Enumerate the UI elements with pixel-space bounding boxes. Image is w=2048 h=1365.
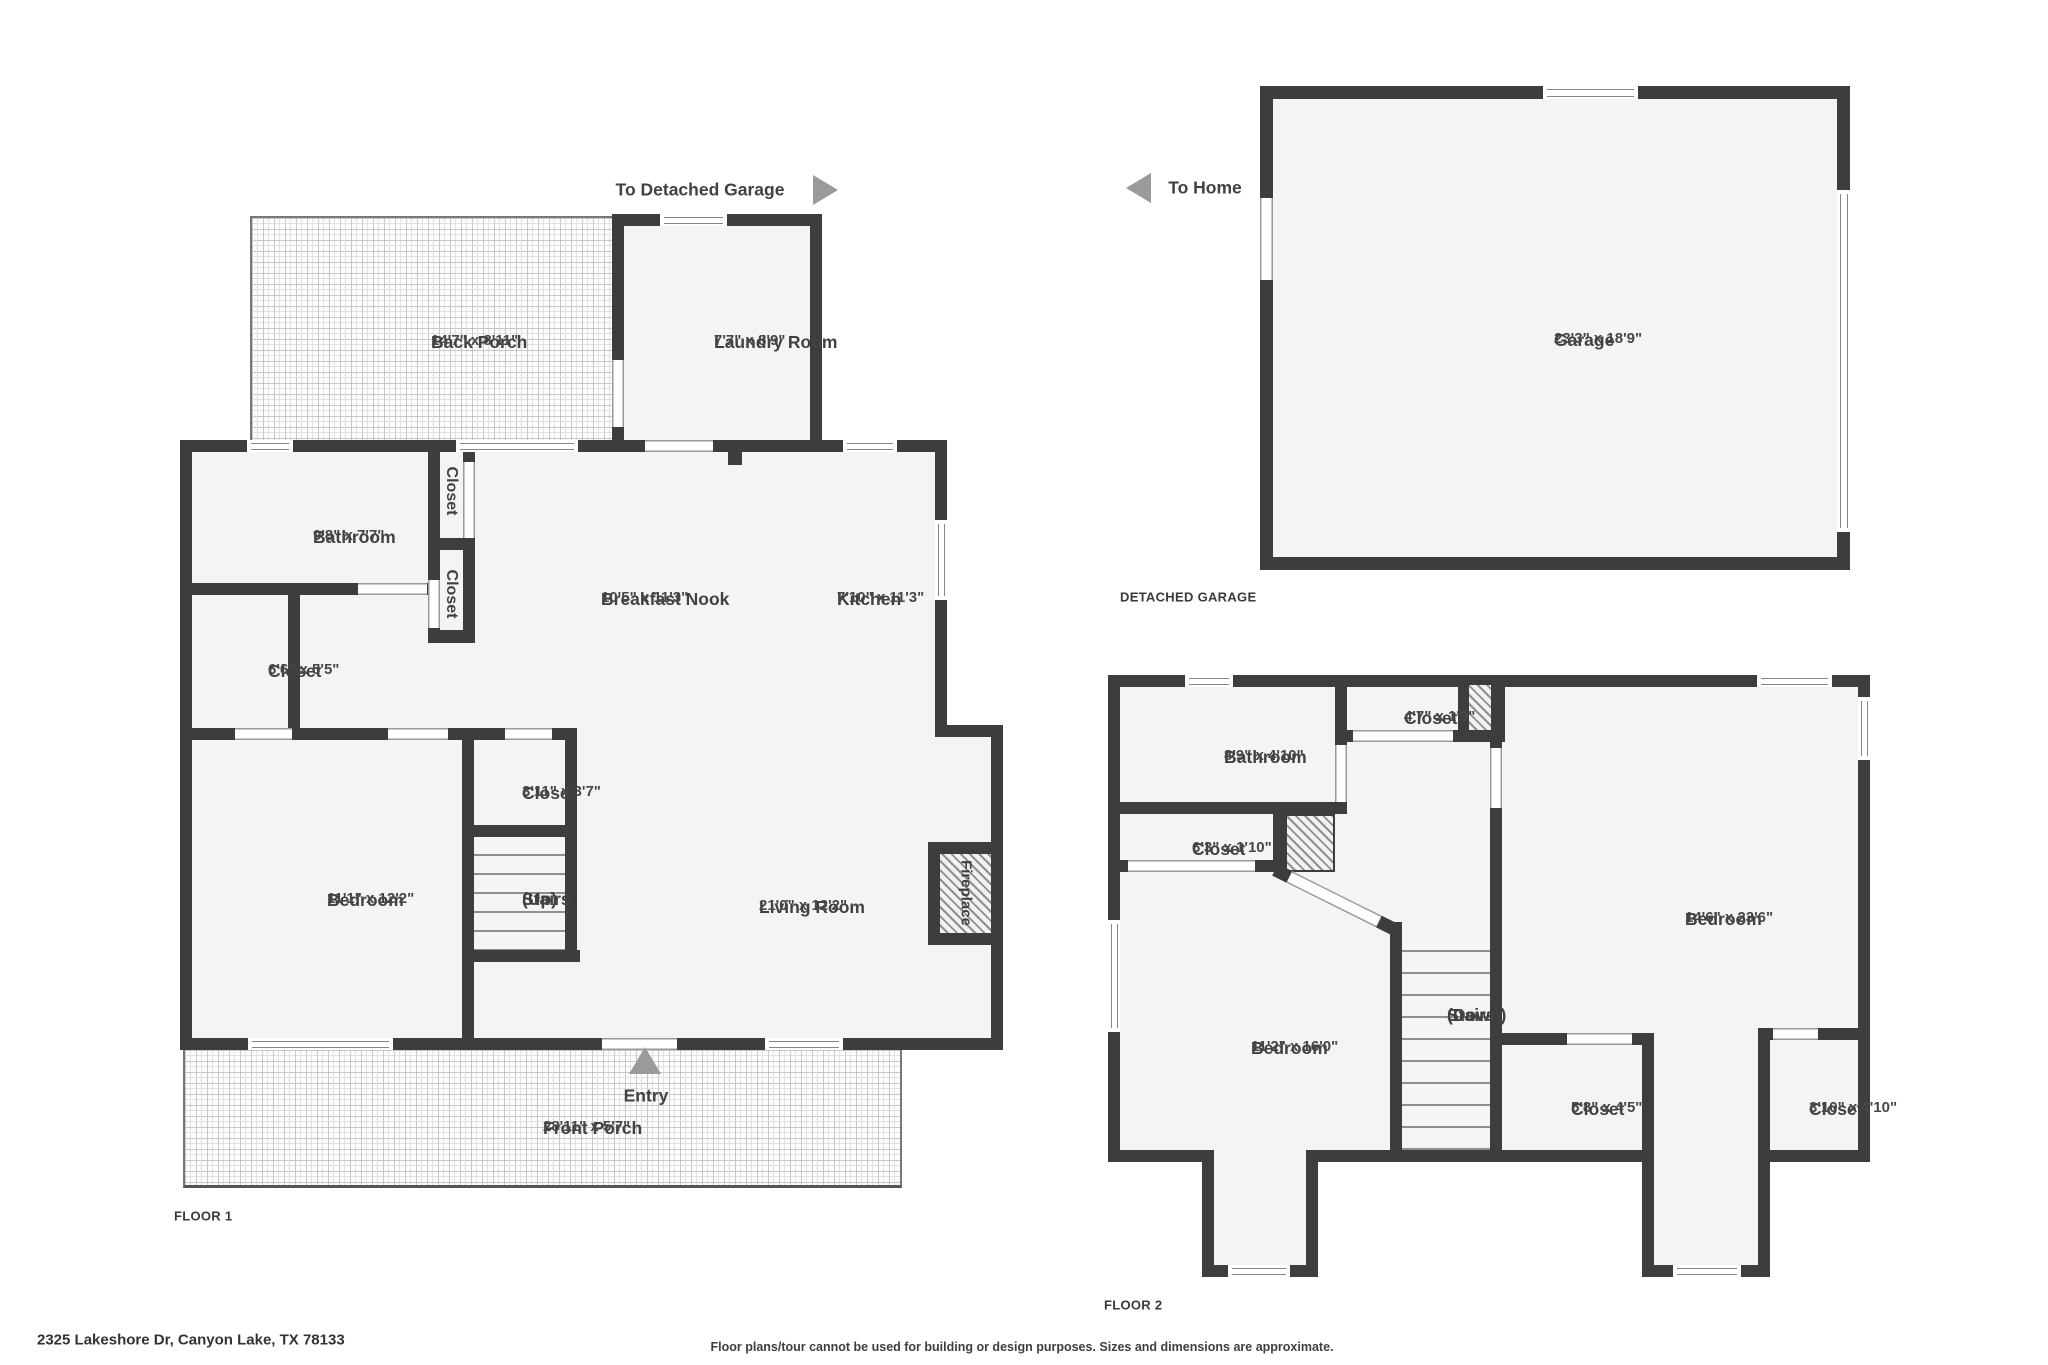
room-label-closet-b: Closet xyxy=(442,570,460,619)
window xyxy=(843,440,897,452)
door-opening xyxy=(1353,730,1453,742)
disclaimer-text: Floor plans/tour cannot be used for buil… xyxy=(710,1340,1333,1354)
wall xyxy=(1108,802,1347,814)
door-opening xyxy=(1567,1033,1632,1045)
room-dims: 14'6" x 23'6" xyxy=(1685,908,1773,928)
room-dims: 23'3" x 18'9" xyxy=(1554,329,1642,349)
floor-plan-canvas: Back Porch 14'7" x 8'11" Laundry Room 7'… xyxy=(0,0,2048,1365)
room-dims: 10'5" x 11'3" xyxy=(601,588,688,608)
detached-garage-caption: DETACHED GARAGE xyxy=(1120,590,1256,605)
door-opening xyxy=(645,440,713,452)
floor2-caption: FLOOR 2 xyxy=(1104,1298,1162,1313)
garage-interior xyxy=(1273,99,1837,557)
room-dims: (Up) xyxy=(522,888,557,910)
to-home-label: To Home xyxy=(1168,178,1242,199)
door-opening xyxy=(505,728,552,740)
wall xyxy=(1306,1150,1652,1162)
room-dims: 14'7" x 8'11" xyxy=(431,331,518,351)
wall xyxy=(1390,922,1402,1162)
wall xyxy=(1273,814,1285,872)
wall xyxy=(1306,1150,1318,1277)
room-dims: 8'9" x 4'10" xyxy=(1224,746,1304,766)
wall xyxy=(1260,86,1273,570)
wall xyxy=(462,728,474,1050)
room-dims: 6'3" x 1'10" xyxy=(1192,838,1272,858)
window xyxy=(1108,920,1120,1032)
wall xyxy=(728,452,742,465)
door-opening xyxy=(1260,198,1273,280)
room-label-fireplace: Fireplace xyxy=(958,860,975,926)
room-dims: 3'11" x 3'7" xyxy=(522,782,601,802)
room-dims: (Down) xyxy=(1447,1004,1506,1026)
window xyxy=(1837,190,1850,532)
window xyxy=(660,214,727,226)
window xyxy=(456,440,578,452)
wall xyxy=(1758,1150,1870,1162)
floor2-bump-mid-interior xyxy=(1654,1150,1758,1265)
floor2-bump-left-interior xyxy=(1214,1150,1306,1265)
room-dims: 9'8" x 7'7" xyxy=(313,526,384,546)
door-opening xyxy=(428,580,440,628)
wall xyxy=(928,842,940,945)
wall xyxy=(1108,675,1120,1162)
door-opening xyxy=(1335,745,1347,802)
room-dims: 5'8" x 4'5" xyxy=(1571,1098,1642,1118)
arrow-right-icon xyxy=(813,175,838,205)
stairs-down-treads xyxy=(1402,930,1490,1150)
floor1-caption: FLOOR 1 xyxy=(174,1209,232,1224)
window xyxy=(765,1038,843,1050)
wall xyxy=(462,825,577,837)
door-opening xyxy=(388,728,448,740)
door-opening xyxy=(1128,860,1255,872)
wall xyxy=(565,728,577,962)
window xyxy=(248,1038,393,1050)
entry-label: Entry xyxy=(624,1086,669,1107)
window xyxy=(247,440,293,452)
wall xyxy=(1108,1150,1214,1162)
door-opening xyxy=(235,728,292,740)
room-dims: 28'11" x 5'7" xyxy=(543,1117,630,1137)
wall xyxy=(1202,1150,1214,1277)
window xyxy=(1228,1265,1290,1277)
wall xyxy=(991,725,1003,1050)
wall xyxy=(462,950,580,962)
wall xyxy=(180,440,192,1050)
window xyxy=(1673,1265,1741,1277)
wall xyxy=(1642,1033,1654,1277)
door-opening xyxy=(1490,748,1502,808)
window xyxy=(935,520,947,600)
to-detached-garage-label: To Detached Garage xyxy=(616,180,785,201)
room-dims: 7'10" x 11'3" xyxy=(837,588,924,608)
arrow-left-icon xyxy=(1126,173,1151,203)
room-dims: 11'2" x 16'0" xyxy=(1251,1037,1338,1057)
back-porch-floor xyxy=(250,216,612,440)
door-opening xyxy=(612,360,624,427)
window xyxy=(1757,675,1832,687)
room-dims: 6'6" x 5'5" xyxy=(268,660,339,680)
chimney-hatch xyxy=(1285,814,1335,872)
room-dims: 21'0" x 12'2" xyxy=(759,896,847,916)
entry-arrow-icon xyxy=(629,1047,661,1074)
room-dims: 7'7" x 8'9" xyxy=(714,331,785,351)
room-dims: 4'7" x 1'9" xyxy=(1404,707,1475,727)
room-label-closet-a: Closet xyxy=(442,467,460,516)
wall xyxy=(1260,557,1850,570)
wall xyxy=(1493,675,1505,742)
wall xyxy=(428,630,475,643)
door-opening xyxy=(358,583,427,595)
window xyxy=(1185,675,1233,687)
room-dims: 3'10" x 4'10" xyxy=(1809,1098,1897,1118)
door-opening xyxy=(463,462,475,538)
door-opening xyxy=(1773,1028,1818,1040)
wall xyxy=(428,538,475,550)
room-dims: 11'1" x 12'2" xyxy=(327,889,414,909)
window xyxy=(1858,697,1870,760)
window xyxy=(1543,86,1638,99)
address-text: 2325 Lakeshore Dr, Canyon Lake, TX 78133 xyxy=(37,1332,345,1349)
wall xyxy=(1758,1028,1770,1277)
